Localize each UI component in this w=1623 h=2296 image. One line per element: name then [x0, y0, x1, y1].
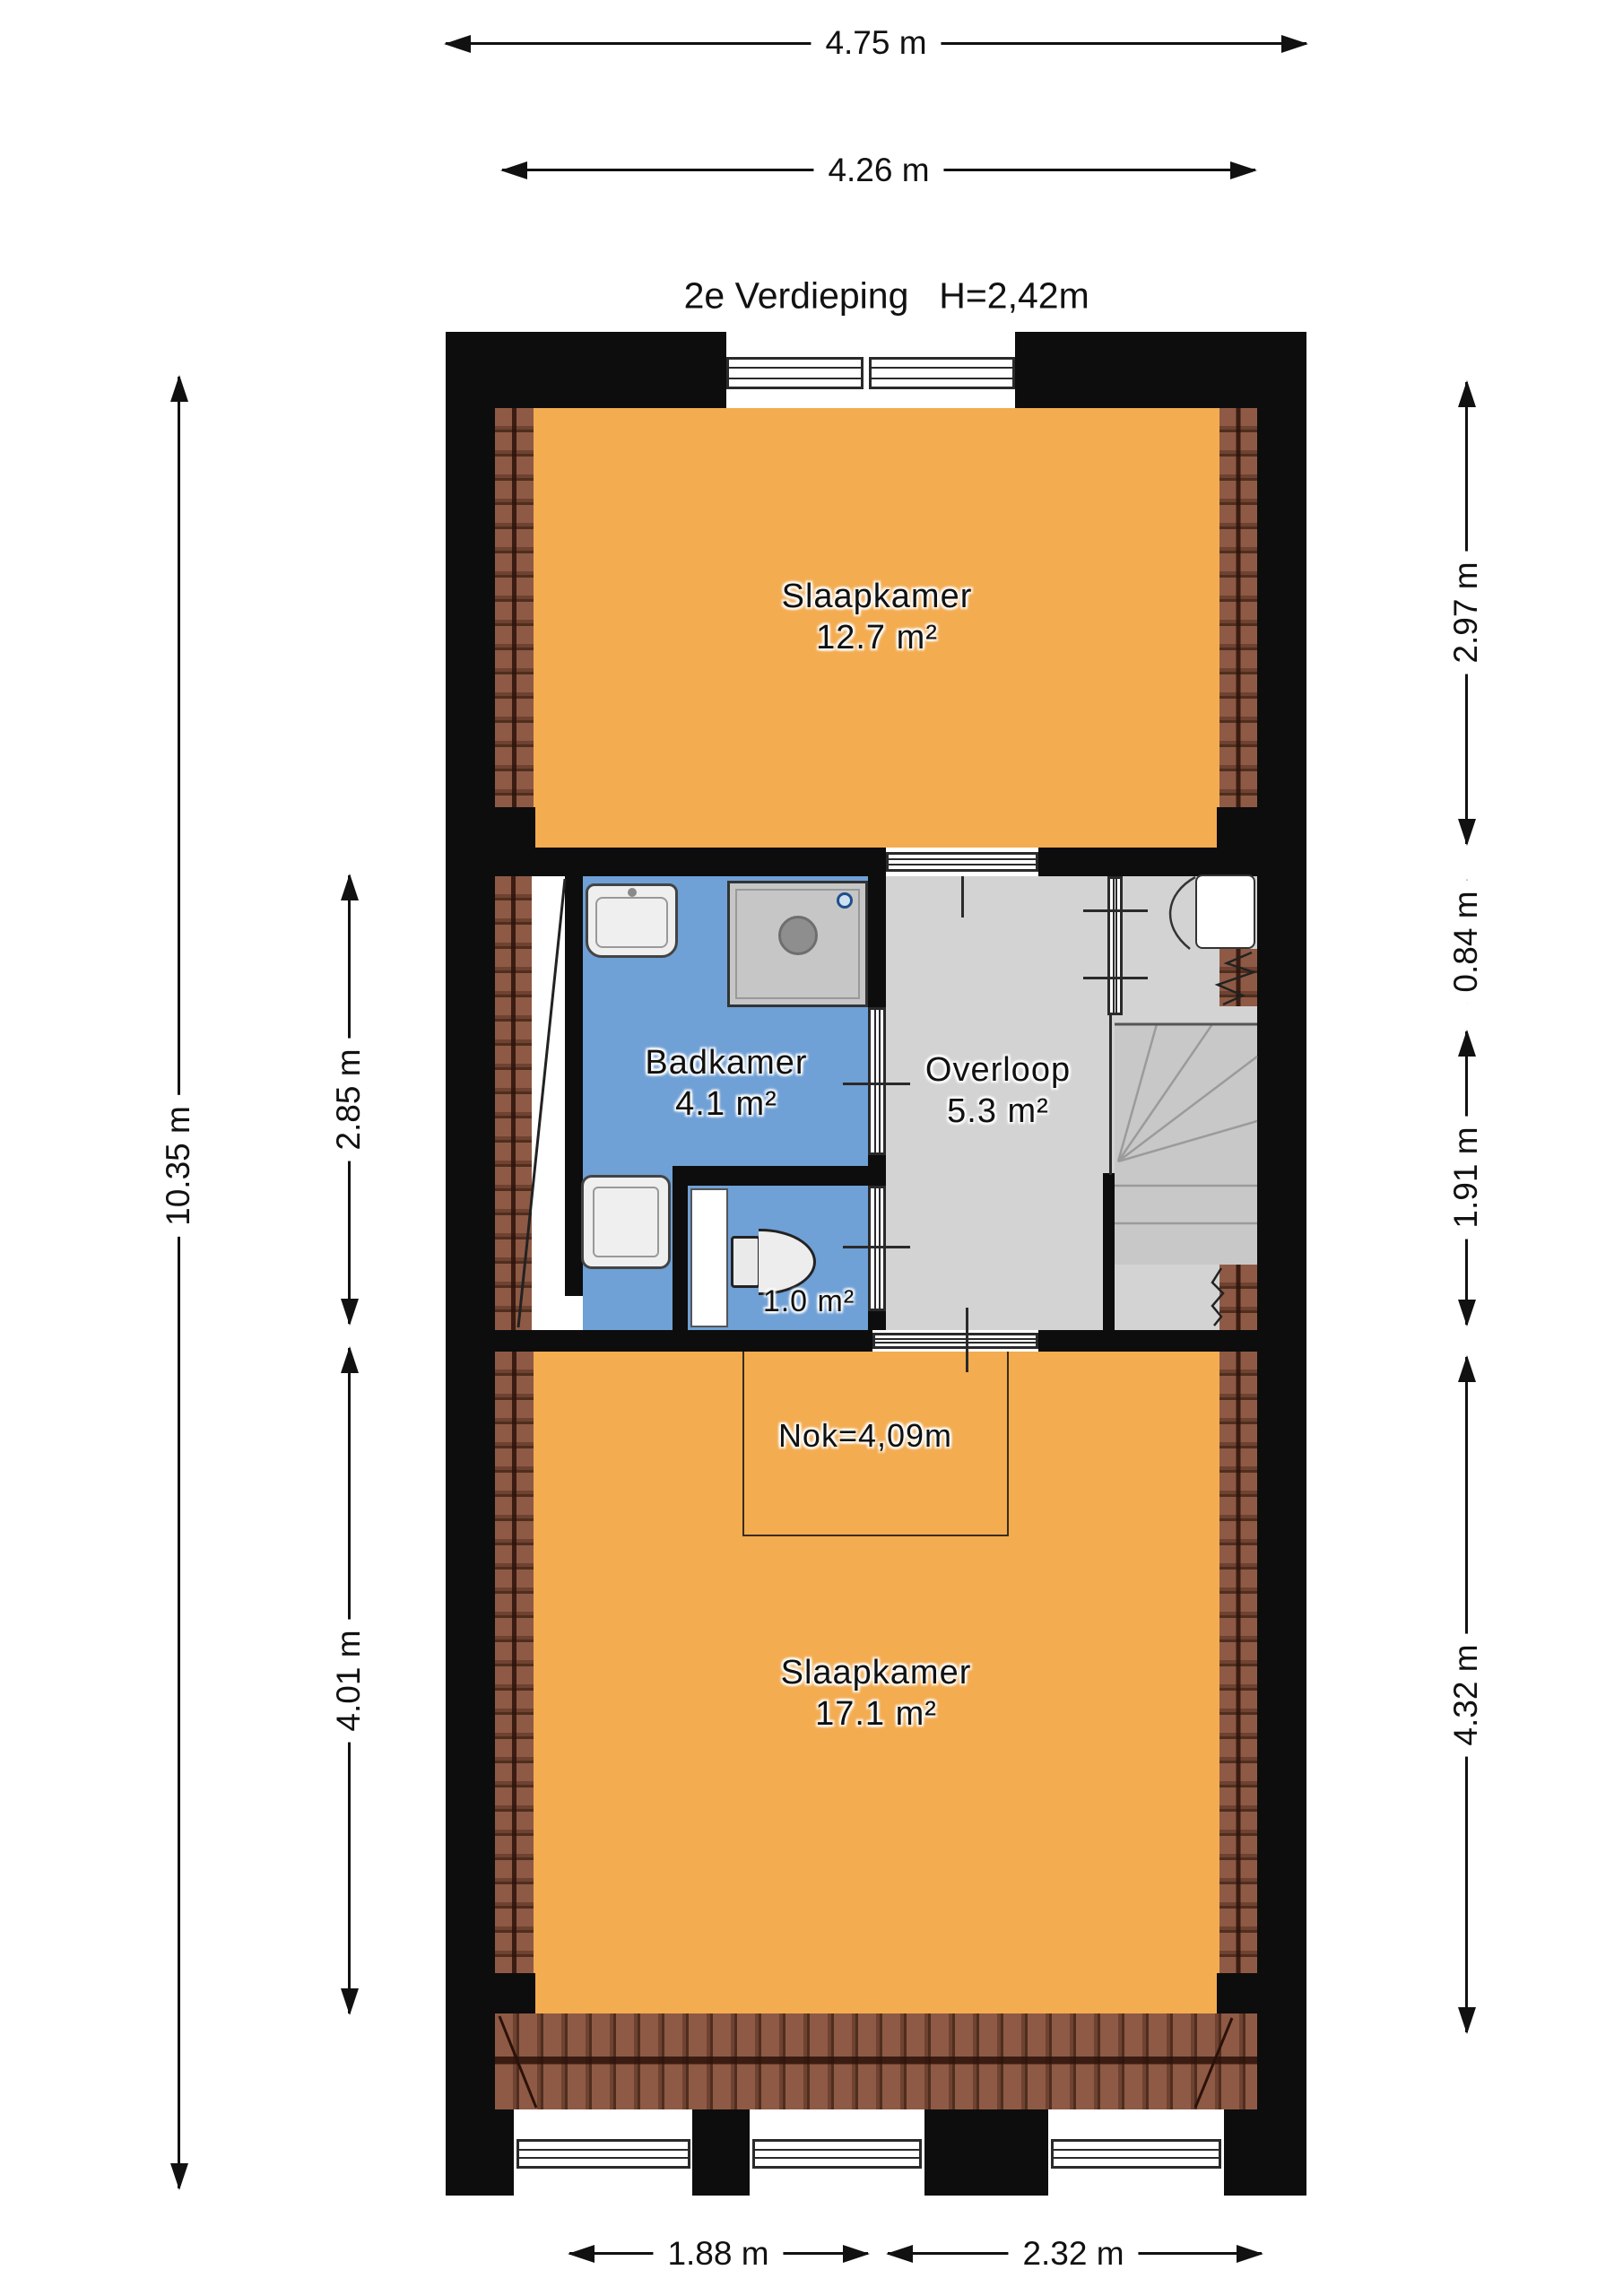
wall-nub-bottom-right — [1217, 1973, 1257, 2013]
room-label-bedroom-top: Slaapkamer 12.7 m² — [653, 576, 1101, 658]
shower-knob-icon — [837, 892, 853, 909]
dim-line-left-total — [178, 377, 180, 2188]
room-label-bedroom-bottom: Slaapkamer 17.1 m² — [652, 1652, 1100, 1735]
washbasin — [586, 883, 678, 958]
dim-label-right-upper-mid: 0.84 m — [1447, 880, 1485, 1003]
wall-band-south-1 — [495, 1330, 872, 1352]
stair-balustrade — [1107, 876, 1123, 1015]
room-name: Badkamer — [645, 1042, 807, 1083]
room-area: 12.7 m² — [816, 617, 938, 658]
glazed-wall-tick-2 — [843, 1246, 910, 1248]
dim-label-bottom-left: 1.88 m — [653, 2235, 783, 2273]
roof-patch-lower-right — [1219, 1265, 1257, 1330]
room-name: Overloop — [925, 1049, 1071, 1091]
shower-drain-icon — [778, 916, 818, 955]
opening-band-north-lines — [886, 852, 1038, 872]
dim-label-bottom-right: 2.32 m — [1008, 2235, 1138, 2273]
balustrade-tick-2 — [1083, 977, 1148, 979]
wall-bottom-4 — [1224, 2109, 1306, 2196]
ridge-outline — [742, 1352, 1009, 1536]
room-area: 17.1 m² — [815, 1693, 937, 1735]
wall-nub-bottom-left — [495, 1973, 535, 2013]
dim-label-left-total: 10.35 m — [160, 1095, 197, 1237]
wall-band-north-1 — [495, 848, 886, 876]
roof-edge-bottom-left — [495, 1352, 534, 1973]
dim-label-right-top: 2.97 m — [1447, 551, 1485, 674]
balustrade-tick-1 — [1083, 909, 1148, 912]
wall-stair-stub — [1103, 1173, 1115, 1330]
room-area: 4.1 m² — [675, 1083, 777, 1125]
room-name: Slaapkamer — [781, 1652, 972, 1693]
roof-edge-bottom-right — [1219, 1352, 1257, 1973]
window-top-mullion — [861, 357, 872, 389]
wall-nub-top-left — [495, 807, 535, 848]
room-label-landing: Overloop 5.3 m² — [819, 1049, 1177, 1132]
wall-left — [446, 332, 495, 2196]
dim-label-right-bottom: 4.32 m — [1447, 1633, 1485, 1756]
window-bottom-1 — [516, 2139, 690, 2169]
wall-nub-top-right — [1217, 807, 1257, 848]
roof-patch-upper-right — [1219, 949, 1257, 1006]
washing-machine — [581, 1175, 671, 1269]
ceiling-height: H=2,42m — [939, 275, 1089, 317]
upper-door-leaf — [1195, 874, 1255, 949]
wall-bottom-2 — [692, 2109, 750, 2196]
wall-band-south-2 — [1038, 1330, 1258, 1352]
wall-bottom-1 — [446, 2109, 514, 2196]
opening-band-south-lines — [872, 1333, 1038, 1349]
room-area: 5.3 m² — [947, 1091, 1049, 1132]
wall-toilet-north — [673, 1166, 886, 1186]
dim-label-left-bottom: 4.01 m — [330, 1619, 368, 1742]
dim-label-left-middle: 2.85 m — [330, 1038, 368, 1161]
roof-edge-mid-left — [495, 876, 532, 1330]
wall-band-north-2 — [1038, 848, 1257, 876]
window-bottom-2 — [752, 2139, 922, 2169]
opening-north-tick — [961, 876, 964, 918]
faucet-icon — [628, 888, 637, 897]
shower — [727, 881, 868, 1007]
floor-title: 2e Verdieping — [684, 275, 909, 317]
room-label-toilet: 1.0 m² — [674, 1284, 943, 1318]
roof-edge-top-right — [1219, 408, 1257, 807]
room-name: Slaapkamer — [782, 576, 973, 617]
room-area: 1.0 m² — [763, 1284, 855, 1318]
wall-right — [1257, 332, 1306, 2196]
dim-label-top-inner: 4.26 m — [813, 152, 943, 189]
roof-edge-top-left — [495, 408, 534, 807]
dim-label-right-lower-mid: 1.91 m — [1447, 1116, 1485, 1239]
floorplan-canvas: Slaapkamer 12.7 m² Badkamer 4.1 m² Overl… — [0, 0, 1623, 2296]
wall-bottom-3 — [924, 2109, 1048, 2196]
dim-label-top-outer: 4.75 m — [811, 24, 941, 62]
toilet-tank — [731, 1236, 760, 1288]
wall-bathroom-divider-top — [868, 876, 886, 1007]
window-bottom-3 — [1051, 2139, 1221, 2169]
roof-eave-band-bottom — [495, 2013, 1257, 2109]
